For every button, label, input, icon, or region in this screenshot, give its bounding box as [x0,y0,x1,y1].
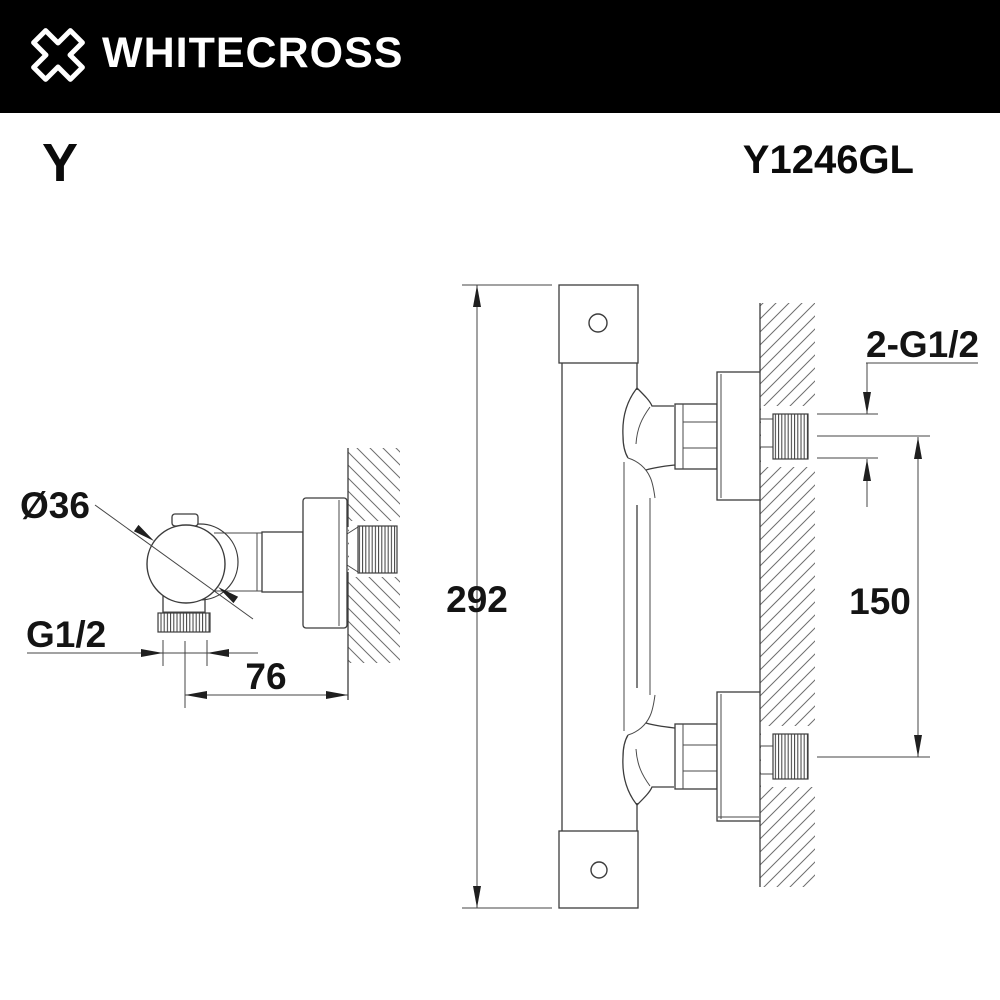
inlet-thread [358,526,397,573]
bottom-hex-union [675,724,717,789]
dim-knob-diameter-text: Ø36 [20,485,90,526]
dimension-port-spacing: 150 [849,437,922,757]
top-wall-thread [773,414,808,459]
dim-wall-thread-text: 2-G1/2 [866,324,979,365]
technical-drawing: 292 2-G1/2 150 [0,0,1000,1000]
wall-section-left [348,448,400,700]
top-arm [623,388,717,498]
bottom-arm [623,695,717,805]
dimension-wall-offset: 76 [185,641,348,708]
dim-wall-offset-text: 76 [245,656,286,697]
wall-flange [303,498,347,628]
wall-section-right [760,303,815,887]
dim-port-spacing-text: 150 [849,581,911,622]
shower-bar [559,285,650,908]
outlet-thread [158,613,210,632]
body-cylinder [262,532,303,592]
bottom-flange [717,692,760,821]
handle-knob [147,525,225,603]
dimension-height: 292 [446,285,552,908]
side-view-dimensions: 292 2-G1/2 150 [446,285,979,908]
handle-cap [172,514,198,526]
dim-height-text: 292 [446,579,508,620]
top-hex-union [675,404,717,469]
bottom-wall-thread [773,734,808,779]
dimension-wall-thread: 2-G1/2 [863,324,979,507]
side-view [559,285,815,908]
bottom-screw-hole [591,862,607,878]
dimension-outlet-thread: G1/2 [26,614,258,666]
top-flange [717,372,760,500]
dim-outlet-thread-text: G1/2 [26,614,106,655]
top-screw-hole [589,314,607,332]
page: WHITECROSS Y Y1246GL [0,0,1000,1000]
